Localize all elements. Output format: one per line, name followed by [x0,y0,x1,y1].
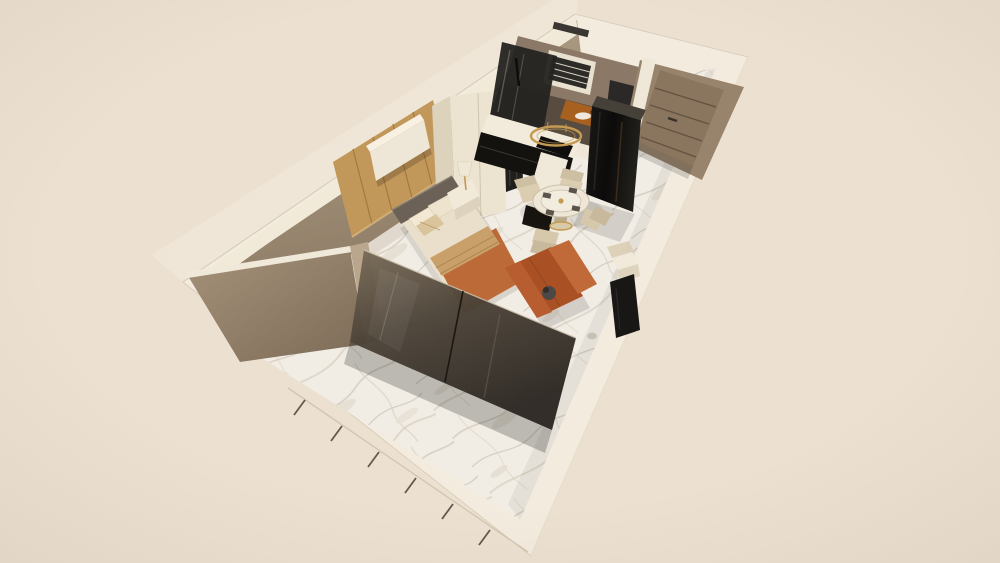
apartment-render [0,0,1000,563]
vignette-overlay [0,0,1000,563]
render-canvas [0,0,1000,563]
